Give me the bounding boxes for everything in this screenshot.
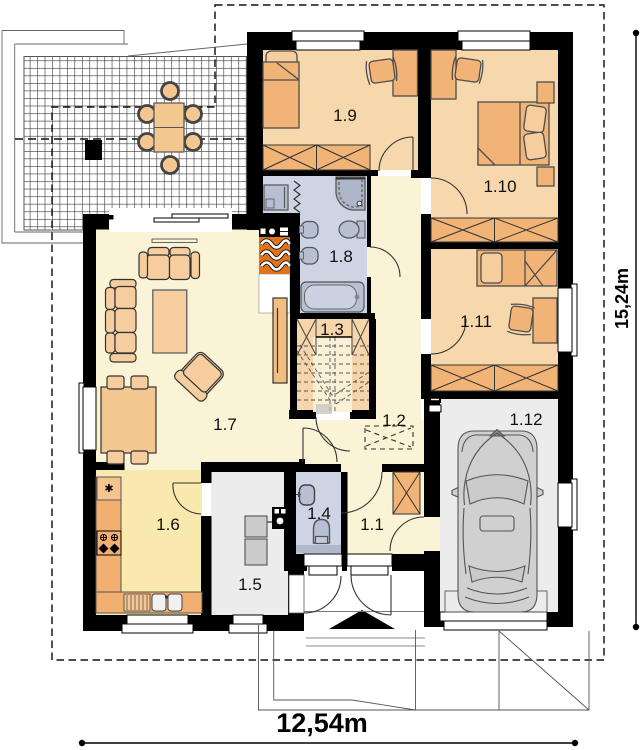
- svg-text:1.7: 1.7: [213, 415, 237, 434]
- svg-text:1.9: 1.9: [333, 106, 357, 125]
- svg-text:15,24m: 15,24m: [612, 268, 632, 329]
- svg-text:1.5: 1.5: [238, 575, 262, 594]
- svg-text:1.12: 1.12: [509, 410, 542, 429]
- svg-text:1.1: 1.1: [360, 515, 384, 534]
- svg-text:✱: ✱: [104, 483, 113, 495]
- svg-text:1.10: 1.10: [483, 177, 516, 196]
- svg-text:1.11: 1.11: [460, 312, 492, 331]
- svg-text:12,54m: 12,54m: [276, 708, 368, 738]
- svg-text:1.3: 1.3: [320, 320, 344, 339]
- svg-text:1.4: 1.4: [307, 504, 331, 523]
- svg-text:1.2: 1.2: [382, 411, 406, 430]
- svg-text:1.6: 1.6: [156, 515, 180, 534]
- svg-text:1.8: 1.8: [329, 247, 353, 266]
